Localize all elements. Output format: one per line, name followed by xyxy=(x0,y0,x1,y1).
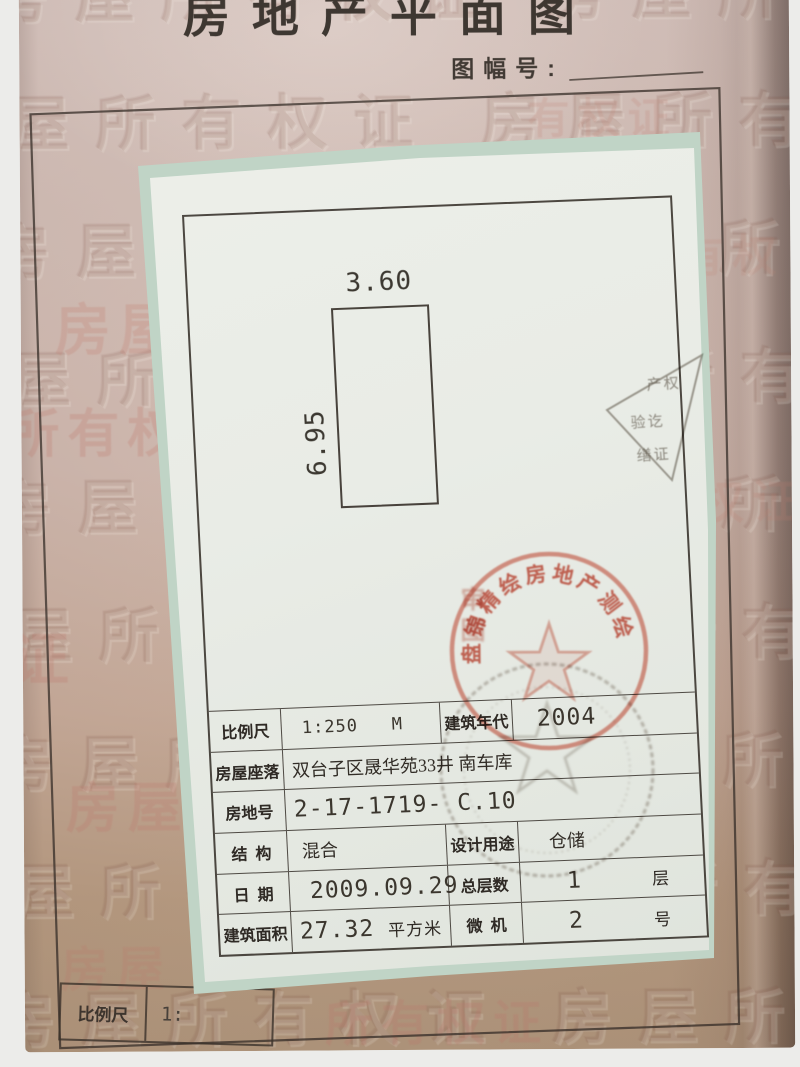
watermark-accent: 证 xyxy=(19,612,77,696)
table-label: 房地号 xyxy=(213,790,286,833)
table-value: 2号 xyxy=(521,896,707,943)
plan-sheet-content: 3.60 6.95 比例尺1:250 M建筑年代2004房屋座落双台子区晟华苑3… xyxy=(182,195,709,957)
table-value-unit: 平方米 xyxy=(387,914,442,941)
scale-label: 比例尺 xyxy=(60,984,146,1040)
table-value-unit: 号 xyxy=(653,905,672,931)
table-label: 比例尺 xyxy=(209,709,282,752)
table-label: 设计用途 xyxy=(445,822,519,865)
bottom-scale-box: 比例尺 1: xyxy=(58,982,275,1046)
sheet-number-label: 图幅号: xyxy=(451,49,564,84)
dimension-width-label: 3.60 xyxy=(329,265,429,299)
table-label: 结 构 xyxy=(215,831,288,874)
dimension-depth-label: 6.95 xyxy=(300,409,333,477)
watermark-accent: 所有权证 xyxy=(325,983,549,1052)
red-stamp-side-text: 审图 xyxy=(452,586,488,648)
table-value: 1:250 M xyxy=(280,703,441,749)
scale-value: 1: xyxy=(144,987,273,1045)
table-label: 建筑面积 xyxy=(219,912,292,955)
table-value: 2009.09.29 xyxy=(288,865,449,911)
info-table: 比例尺1:250 M建筑年代2004房屋座落双台子区晟华苑33井 南车库房地号2… xyxy=(209,691,707,954)
table-label: 建筑年代 xyxy=(439,700,513,743)
photo-background: 房屋所有权证 房屋所有权证 房屋所有权证 房屋所有权证 房屋所有权证 房屋所有权… xyxy=(0,0,800,1067)
table-label: 日 期 xyxy=(217,872,290,915)
table-value: 27.32平方米 xyxy=(290,906,451,952)
watermark-accent: 房屋 xyxy=(65,763,189,843)
table-label: 微 机 xyxy=(449,903,523,946)
table-value-unit: 层 xyxy=(651,864,670,890)
table-label: 房屋座落 xyxy=(211,750,284,793)
table-label: 总层数 xyxy=(447,863,521,906)
table-value: 混合 xyxy=(286,825,447,871)
plan-rectangle xyxy=(331,304,439,508)
page-title: 房地产平面图 xyxy=(183,0,597,46)
